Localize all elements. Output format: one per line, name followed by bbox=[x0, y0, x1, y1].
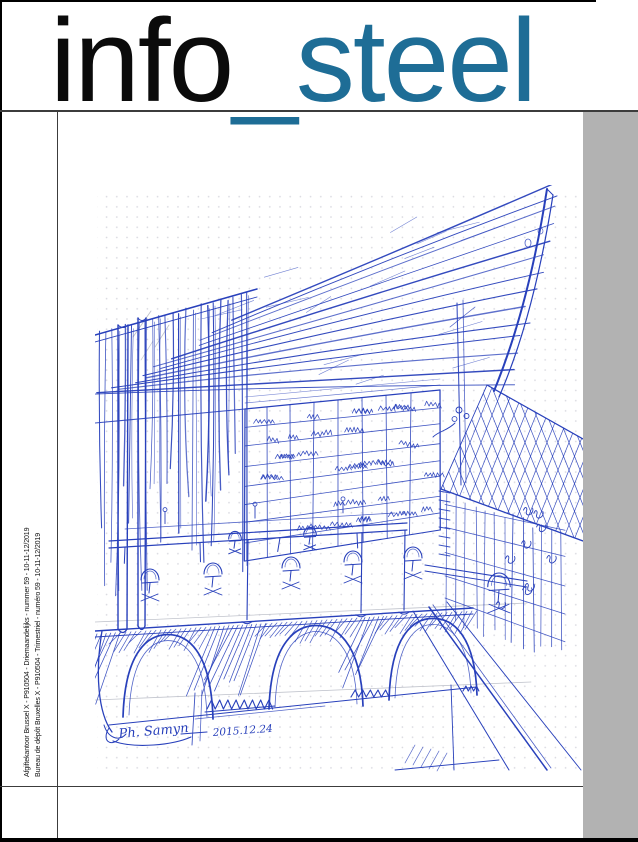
page-border-left bbox=[0, 0, 2, 842]
footer-rule bbox=[0, 786, 638, 787]
architectural-sketch-panel: Ph. Samyn 2015.12.24 bbox=[95, 185, 583, 777]
spine-imprint-line-nl: Afgiftekantoor Brussel X - P910504 - Dri… bbox=[22, 517, 33, 777]
left-column-divider bbox=[57, 111, 58, 838]
issue-number: 59 bbox=[582, 834, 634, 842]
dotted-paper bbox=[97, 191, 583, 777]
spine-imprint: Afgiftekantoor Brussel X - P910504 - Dri… bbox=[22, 517, 43, 777]
architectural-sketch: Ph. Samyn 2015.12.24 bbox=[95, 185, 583, 777]
issue-sidebar: 59 bbox=[583, 112, 638, 839]
page-border-bottom bbox=[0, 838, 638, 842]
masthead-title-accent: _steel bbox=[232, 0, 535, 127]
masthead-title: info_steel bbox=[50, 2, 535, 120]
spine-imprint-line-fr: Bureau de dépôt Bruxelles X - P910504 - … bbox=[33, 517, 44, 777]
masthead-title-prefix: info bbox=[50, 0, 232, 127]
magazine-cover: info_steel Afgiftekantoor Brussel X - P9… bbox=[0, 0, 638, 842]
